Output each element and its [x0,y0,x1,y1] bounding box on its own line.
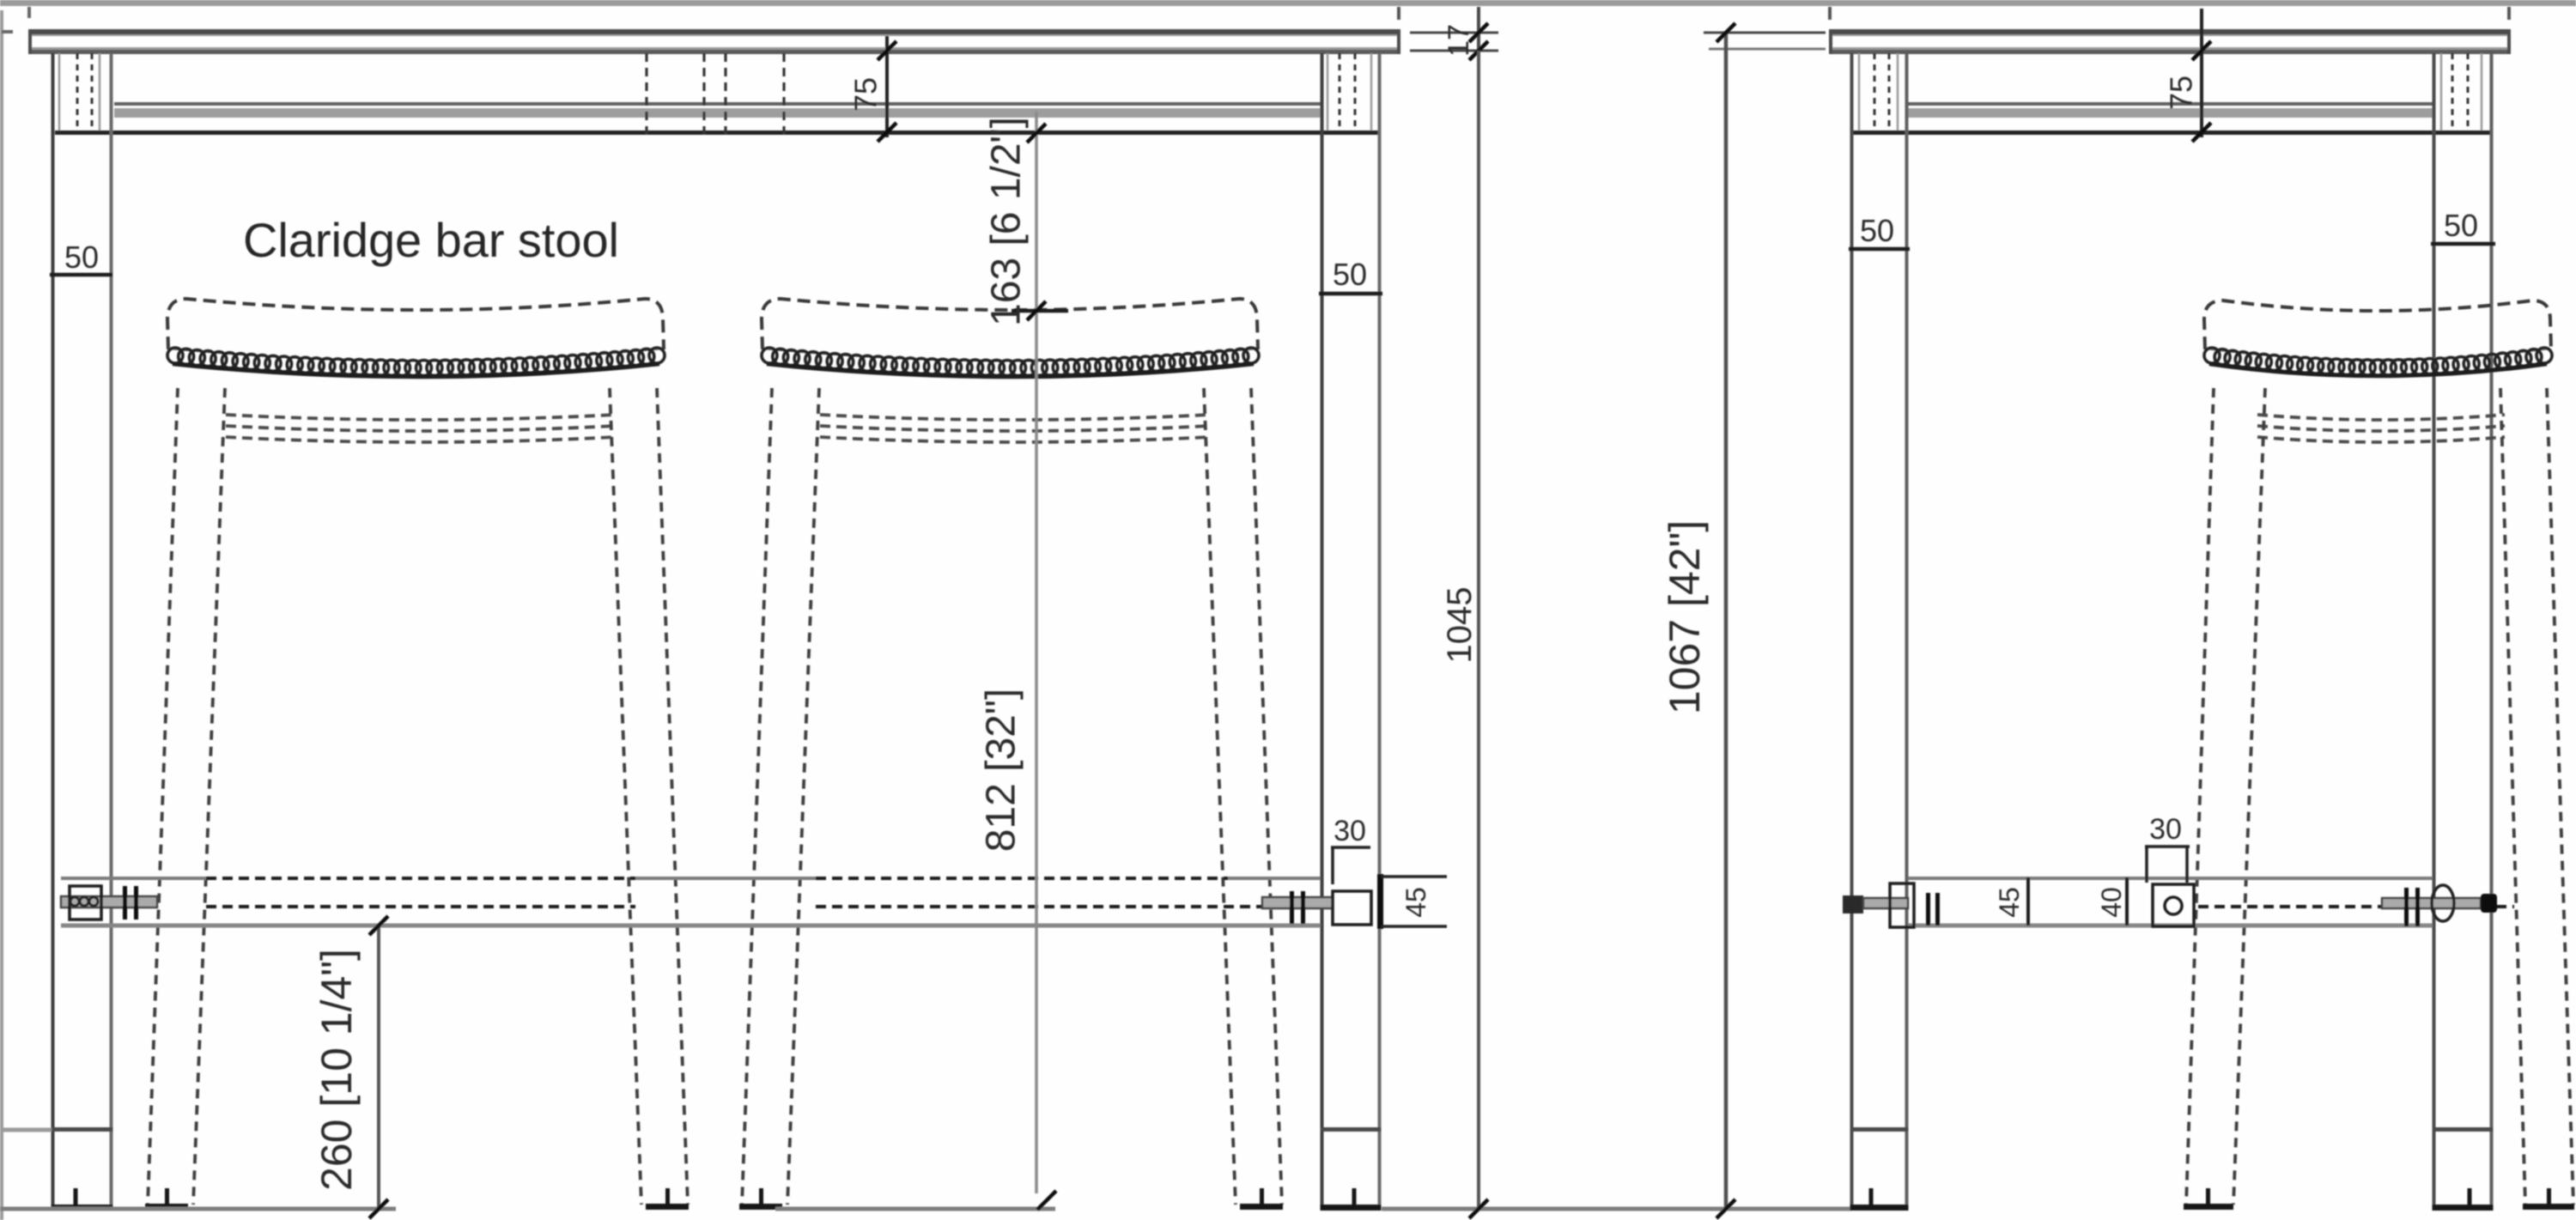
svg-text:40: 40 [2096,887,2127,918]
svg-text:Claridge bar stool: Claridge bar stool [243,213,619,267]
svg-text:1067 [42"]: 1067 [42"] [1661,520,1709,714]
svg-text:75: 75 [2164,76,2199,110]
svg-text:1045: 1045 [1441,587,1479,664]
svg-text:50: 50 [1860,213,1894,248]
svg-text:45: 45 [1400,887,1431,918]
svg-text:50: 50 [64,240,99,275]
svg-text:163 [6 1/2"]: 163 [6 1/2"] [984,117,1030,326]
svg-text:45: 45 [1994,887,2025,918]
svg-text:50: 50 [2444,208,2478,243]
svg-text:30: 30 [1334,815,1366,847]
svg-text:75: 75 [848,77,884,112]
svg-text:812 [32"]: 812 [32"] [979,689,1024,853]
svg-text:260 [10 1/4"]: 260 [10 1/4"] [313,949,361,1191]
svg-text:50: 50 [1333,257,1367,292]
svg-text:30: 30 [2149,813,2182,846]
svg-text:17: 17 [1443,24,1475,57]
